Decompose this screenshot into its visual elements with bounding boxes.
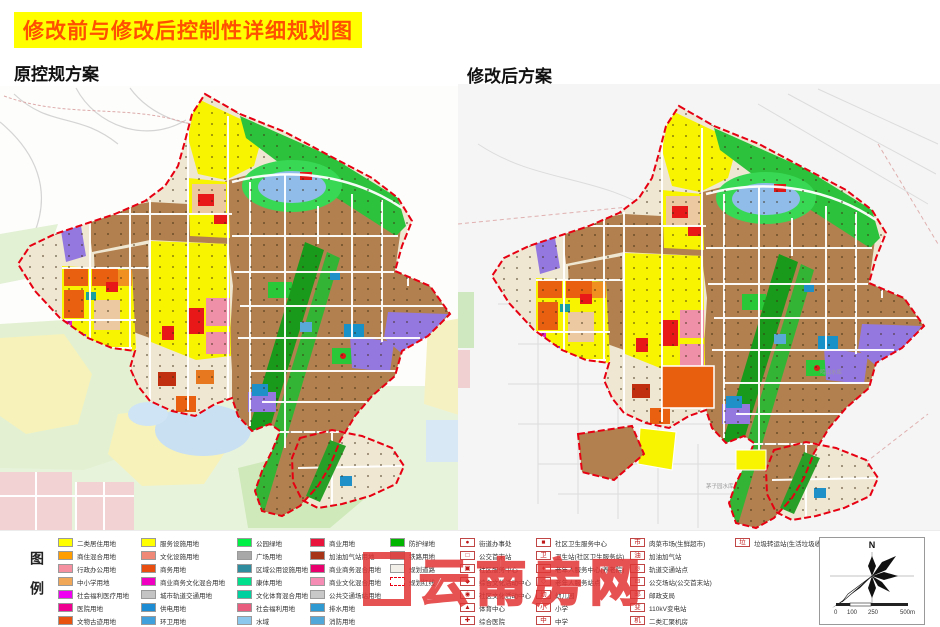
legend-item: 铁路用地	[390, 549, 435, 562]
legend-item: 商业商务混合用地	[310, 562, 381, 575]
water-label: 鸣山水库	[820, 368, 843, 376]
legend-item: 医院用地	[58, 601, 103, 614]
legend-label: 体育中心	[479, 603, 505, 613]
legend-swatch	[390, 538, 405, 547]
legend-item: 排水用地	[310, 601, 355, 614]
legend-label: 街道办事处	[479, 538, 512, 548]
legend-label: 服务设施用地	[160, 538, 199, 548]
legend-item: 商住混合用地	[58, 549, 116, 562]
legend-label: 行政办公用地	[77, 564, 116, 574]
legend-symbol-icon: 卫	[536, 551, 551, 560]
legend-swatch	[58, 590, 73, 599]
legend-item: 商业文化混合用地	[310, 575, 381, 588]
compass-box: N 0100250500m	[819, 537, 925, 625]
legend-label: 区域公用设施用地	[256, 564, 308, 574]
legend-item: 油加油加气站	[630, 549, 682, 562]
legend-item: ◉社区文化活动中心	[460, 588, 531, 601]
legend-swatch	[237, 551, 252, 560]
legend-item: 中小学用地	[58, 575, 110, 588]
legend-symbol-icon: 邮	[630, 590, 645, 599]
legend-symbol-icon: 幼	[536, 590, 551, 599]
water-label: 茅子园水库	[706, 482, 734, 490]
legend-item: ■社区卫生服务中心	[536, 536, 607, 549]
legend-item: 商业用地	[310, 536, 355, 549]
legend-label: 防护绿地	[409, 538, 435, 548]
legend-item: 文化设施用地	[141, 549, 199, 562]
scale-tick: 500m	[900, 610, 915, 616]
legend-symbol-icon: ⊟	[630, 577, 645, 586]
legend-symbol-icon: ■	[536, 538, 551, 547]
legend-item: ◆综合文化活动中心	[460, 575, 531, 588]
legend-item: 二类居住用地	[58, 536, 116, 549]
legend-label: 加油加气站用地	[329, 551, 375, 561]
legend-symbol-icon: 中	[536, 616, 551, 625]
legend-swatch	[58, 551, 73, 560]
legend-symbol-icon: ♦	[536, 564, 551, 573]
scale-bar	[820, 600, 924, 610]
legend-swatch	[237, 603, 252, 612]
left-map-heading: 原控规方案	[14, 60, 99, 85]
legend-item: ⊟公交场站(公交首末站)	[630, 575, 712, 588]
legend-symbol-icon: 机	[630, 616, 645, 625]
legend-columns: 二类居住用地商住混合用地行政办公用地中小学用地社会福利医疗用地医院用地文物古迹用…	[0, 531, 940, 627]
legend-label: 轨道交通站点	[649, 564, 688, 574]
legend-label: 规划红线	[409, 577, 435, 587]
legend-item: ●街道办事处	[460, 536, 512, 549]
legend-swatch	[237, 538, 252, 547]
legend-item: 康体用地	[237, 575, 282, 588]
legend-swatch	[141, 564, 156, 573]
legend-item: 公共交通场站用地	[310, 588, 381, 601]
planning-comparison-page: 修改前与修改后控制性详细规划图 原控规方案 修改后方案	[0, 0, 940, 627]
legend-swatch	[58, 603, 73, 612]
legend-label: 卫生站(社区卫生服务站)	[555, 551, 624, 561]
scale-tick: 100	[847, 610, 857, 616]
legend-label: 文化设施用地	[160, 551, 199, 561]
legend-label: 文物古迹用地	[77, 616, 116, 626]
legend-swatch	[58, 564, 73, 573]
legend-swatch	[141, 590, 156, 599]
legend-symbol-icon: 小	[536, 603, 551, 612]
legend-label: 公园绿地	[256, 538, 282, 548]
legend-label: 消防用地	[329, 616, 355, 626]
legend-label: 商业商务文化混合用地	[160, 577, 225, 587]
legend-item: 供电用地	[141, 601, 186, 614]
original-plan-map	[0, 86, 462, 530]
legend-label: 中学	[555, 616, 568, 626]
legend-item: 商务用地	[141, 562, 186, 575]
legend-symbol-icon: 变	[630, 603, 645, 612]
legend-item: ◇老年人服务站点	[536, 575, 601, 588]
legend-symbol-icon: ◉	[460, 590, 475, 599]
north-label: N	[820, 540, 924, 550]
legend-item: 规划道路	[390, 562, 435, 575]
legend-swatch	[390, 564, 405, 573]
legend-item: 市肉菜市场(生鲜超市)	[630, 536, 705, 549]
legend-symbol-icon: 油	[630, 551, 645, 560]
legend-label: 供电用地	[160, 603, 186, 613]
legend-label: 商住混合用地	[77, 551, 116, 561]
legend-item: 文化体育混合用地	[237, 588, 308, 601]
legend-item: 城市轨道交通用地	[141, 588, 212, 601]
legend-item: □公交首末站	[460, 549, 512, 562]
legend-item: 环卫用地	[141, 614, 186, 627]
legend-label: 中小学用地	[77, 577, 110, 587]
legend-label: 二类居住用地	[77, 538, 116, 548]
legend-label: 文化体育混合用地	[256, 590, 308, 600]
legend-label: 商业用地	[329, 538, 355, 548]
legend-label: 社区服务中心	[479, 564, 518, 574]
legend-item: 文物古迹用地	[58, 614, 116, 627]
legend-label: 广场用地	[256, 551, 282, 561]
legend-swatch	[58, 577, 73, 586]
modified-plan-map: 鸣山水库 茅子园水库	[458, 84, 940, 530]
legend-swatch	[310, 616, 325, 625]
legend-swatch	[141, 603, 156, 612]
legend-item: 公园绿地	[237, 536, 282, 549]
legend-item: 社会福利医疗用地	[58, 588, 129, 601]
legend-item: 区域公用设施用地	[237, 562, 308, 575]
scale-tick: 0	[834, 610, 837, 616]
legend-item: 社会福利用地	[237, 601, 295, 614]
legend-swatch	[141, 577, 156, 586]
legend-item: ▣社区服务中心	[460, 562, 518, 575]
legend-swatch	[390, 577, 405, 586]
legend-item: 幼幼儿园	[536, 588, 575, 601]
legend-swatch	[141, 616, 156, 625]
page-title: 修改前与修改后控制性详细规划图	[14, 12, 362, 48]
legend-item: 服务设施用地	[141, 536, 199, 549]
legend-symbol-icon: ✚	[460, 616, 475, 625]
legend-label: 小学	[555, 603, 568, 613]
legend-item: 卫卫生站(社区卫生服务站)	[536, 549, 624, 562]
legend-swatch	[141, 538, 156, 547]
legend-symbol-icon: ◆	[460, 577, 475, 586]
legend-swatch	[237, 590, 252, 599]
legend-symbol-icon: ▣	[460, 564, 475, 573]
legend-item: 中中学	[536, 614, 568, 627]
legend-label: 加油加气站	[649, 551, 682, 561]
legend-item: ♦老年人服务中心(养老院)	[536, 562, 624, 575]
legend-label: 社区卫生服务中心	[555, 538, 607, 548]
legend-item: 变110kV变电站	[630, 601, 686, 614]
legend-label: 社区文化活动中心	[479, 590, 531, 600]
legend-symbol-icon: 市	[630, 538, 645, 547]
legend-label: 社会福利医疗用地	[77, 590, 129, 600]
legend-symbol-icon: ◇	[536, 577, 551, 586]
legend-swatch	[141, 551, 156, 560]
legend-item: 机二类汇聚机房	[630, 614, 688, 627]
legend-label: 水域	[256, 616, 269, 626]
legend: 图例 二类居住用地商住混合用地行政办公用地中小学用地社会福利医疗用地医院用地文物…	[0, 530, 940, 627]
legend-item: 水域	[237, 614, 269, 627]
legend-item: 小小学	[536, 601, 568, 614]
legend-item: ▲体育中心	[460, 601, 505, 614]
legend-swatch	[310, 551, 325, 560]
legend-item: 加油加气站用地	[310, 549, 375, 562]
legend-label: 幼儿园	[555, 590, 575, 600]
legend-item: 商业商务文化混合用地	[141, 575, 225, 588]
legend-label: 城市轨道交通用地	[160, 590, 212, 600]
legend-label: 肉菜市场(生鲜超市)	[649, 538, 705, 548]
legend-label: 综合文化活动中心	[479, 577, 531, 587]
legend-label: 环卫用地	[160, 616, 186, 626]
legend-label: 铁路用地	[409, 551, 435, 561]
legend-swatch	[310, 564, 325, 573]
legend-swatch	[310, 577, 325, 586]
legend-label: 老年人服务中心(养老院)	[555, 564, 624, 574]
legend-label: 商业商务混合用地	[329, 564, 381, 574]
legend-symbol-icon: ●	[460, 538, 475, 547]
legend-label: 公交场站(公交首末站)	[649, 577, 712, 587]
new-commercial-block	[662, 366, 714, 408]
legend-swatch	[58, 538, 73, 547]
legend-item: 广场用地	[237, 549, 282, 562]
legend-label: 医院用地	[77, 603, 103, 613]
legend-label: 排水用地	[329, 603, 355, 613]
legend-swatch	[237, 564, 252, 573]
legend-swatch	[58, 616, 73, 625]
legend-label: 商务用地	[160, 564, 186, 574]
legend-swatch	[390, 551, 405, 560]
scale-tick: 250	[868, 610, 878, 616]
legend-item: ◎轨道交通站点	[630, 562, 688, 575]
legend-label: 邮政支局	[649, 590, 675, 600]
legend-symbol-icon: 垃	[735, 538, 750, 547]
legend-label: 综合医院	[479, 616, 505, 626]
legend-item: 规划红线	[390, 575, 435, 588]
legend-item: 防护绿地	[390, 536, 435, 549]
legend-label: 社会福利用地	[256, 603, 295, 613]
legend-item: 消防用地	[310, 614, 355, 627]
legend-item: 邮邮政支局	[630, 588, 675, 601]
legend-label: 二类汇聚机房	[649, 616, 688, 626]
legend-swatch	[310, 603, 325, 612]
legend-swatch	[310, 538, 325, 547]
scale-tick-labels: 0100250500m	[820, 610, 924, 620]
legend-symbol-icon: ◎	[630, 564, 645, 573]
legend-label: 商业文化混合用地	[329, 577, 381, 587]
legend-label: 110kV变电站	[649, 603, 686, 613]
legend-label: 公交首末站	[479, 551, 512, 561]
legend-swatch	[237, 616, 252, 625]
legend-swatch	[237, 577, 252, 586]
legend-item: 行政办公用地	[58, 562, 116, 575]
legend-label: 规划道路	[409, 564, 435, 574]
legend-label: 老年人服务站点	[555, 577, 601, 587]
legend-swatch	[310, 590, 325, 599]
legend-symbol-icon: □	[460, 551, 475, 560]
legend-label: 康体用地	[256, 577, 282, 587]
legend-item: ✚综合医院	[460, 614, 505, 627]
legend-symbol-icon: ▲	[460, 603, 475, 612]
legend-label: 公共交通场站用地	[329, 590, 381, 600]
